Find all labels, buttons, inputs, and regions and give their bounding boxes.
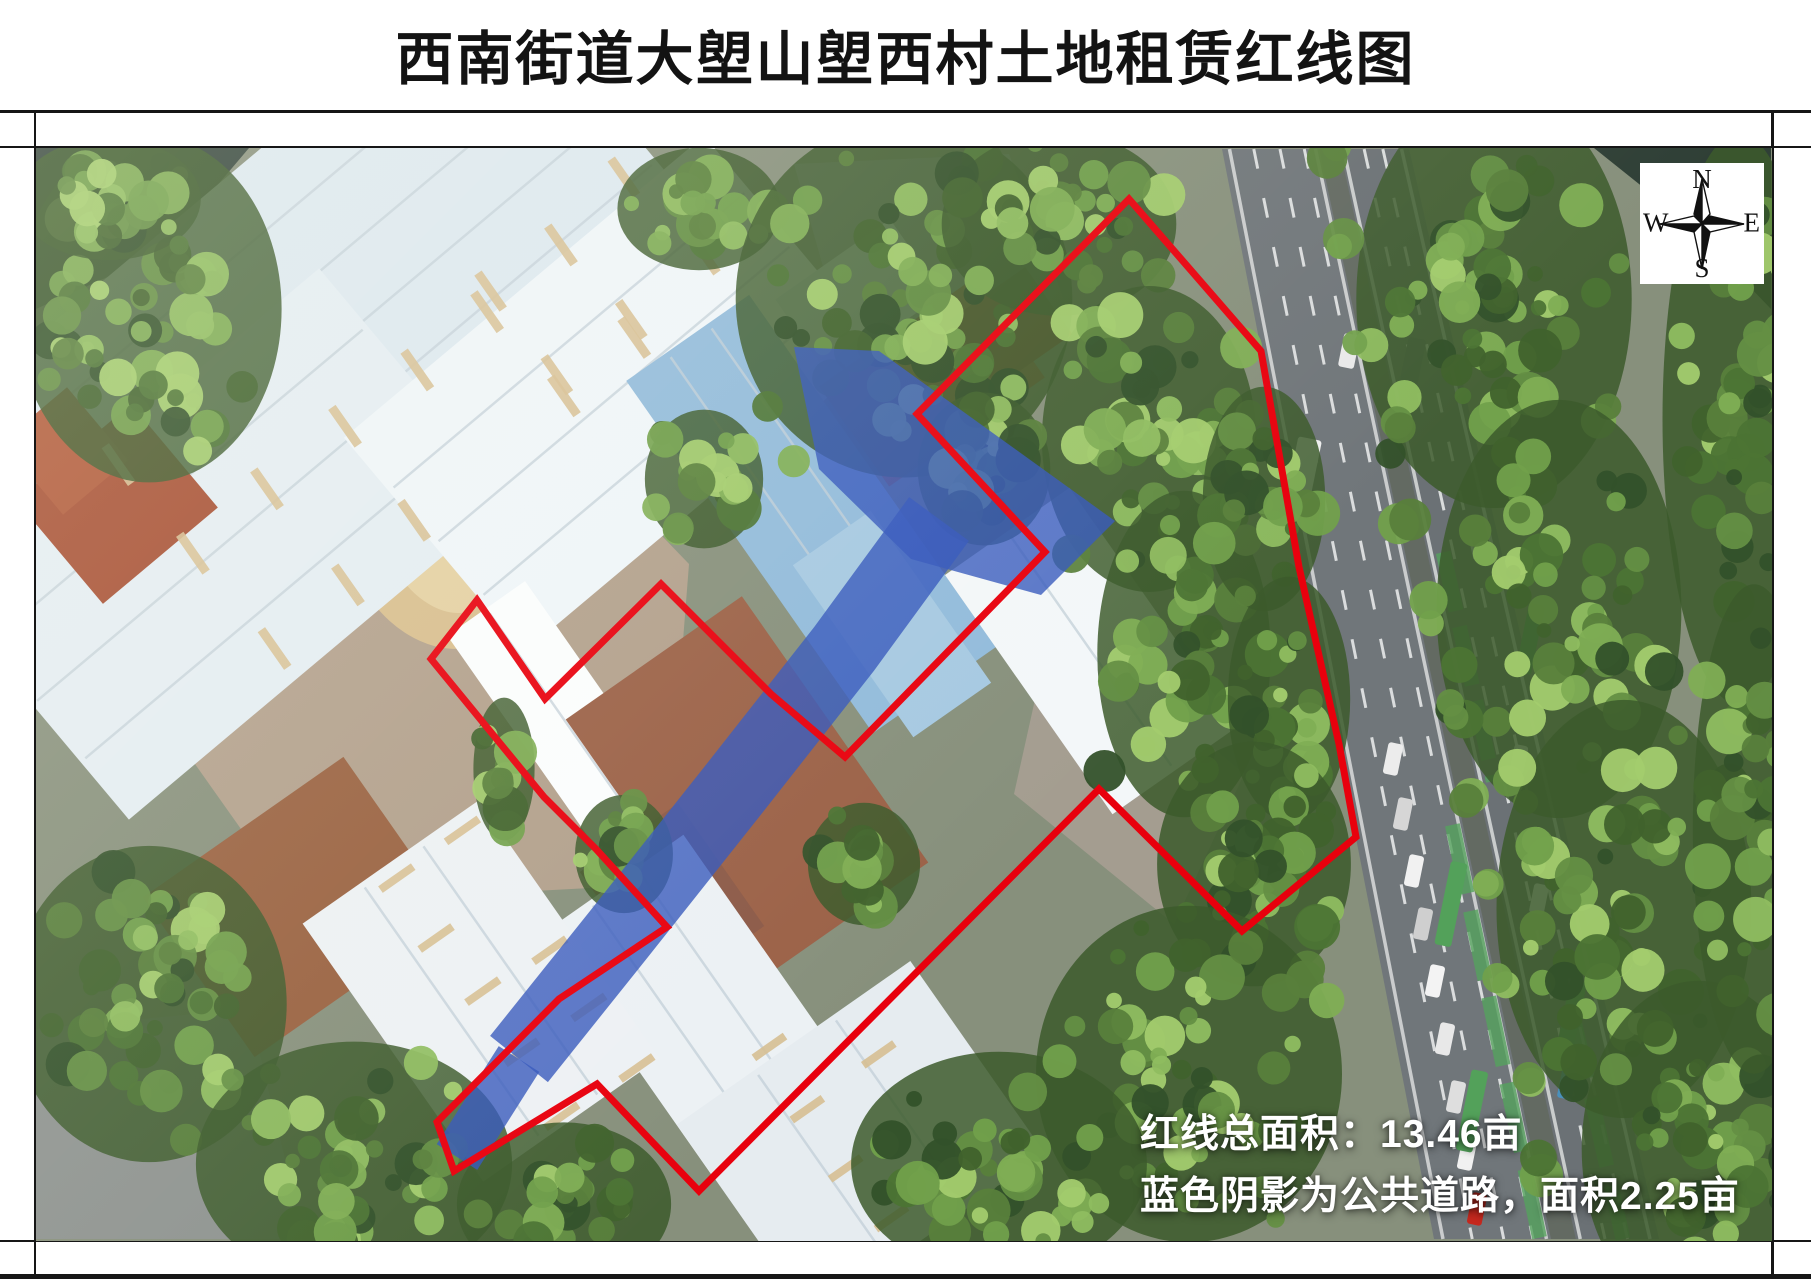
frame-top-outer-line [0, 110, 1811, 113]
area-annotation: 红线总面积：13.46亩 蓝色阴影为公共道路，面积2.25亩 [1140, 1104, 1740, 1228]
aerial-photo: 红线总面积：13.46亩 蓝色阴影为公共道路，面积2.25亩 [36, 148, 1772, 1241]
red-line-area-text: 红线总面积：13.46亩 [1140, 1104, 1740, 1166]
compass-west-label: W [1643, 207, 1668, 238]
compass-north-label: N [1692, 164, 1712, 195]
compass-south-label: S [1694, 253, 1709, 284]
frame-bottom-outer-line [0, 1274, 1811, 1279]
blue-road-area-text: 蓝色阴影为公共道路，面积2.25亩 [1140, 1166, 1740, 1228]
compass-rose-icon: N S W E [1640, 163, 1764, 284]
map-sheet: 西南街道大塱山塱西村土地租赁红线图 红线总面积：13.46亩 蓝色阴影为公共道路… [0, 0, 1811, 1280]
aerial-scene [36, 148, 1772, 1241]
compass-east-label: E [1744, 207, 1761, 238]
page-title: 西南街道大塱山塱西村土地租赁红线图 [0, 12, 1811, 96]
